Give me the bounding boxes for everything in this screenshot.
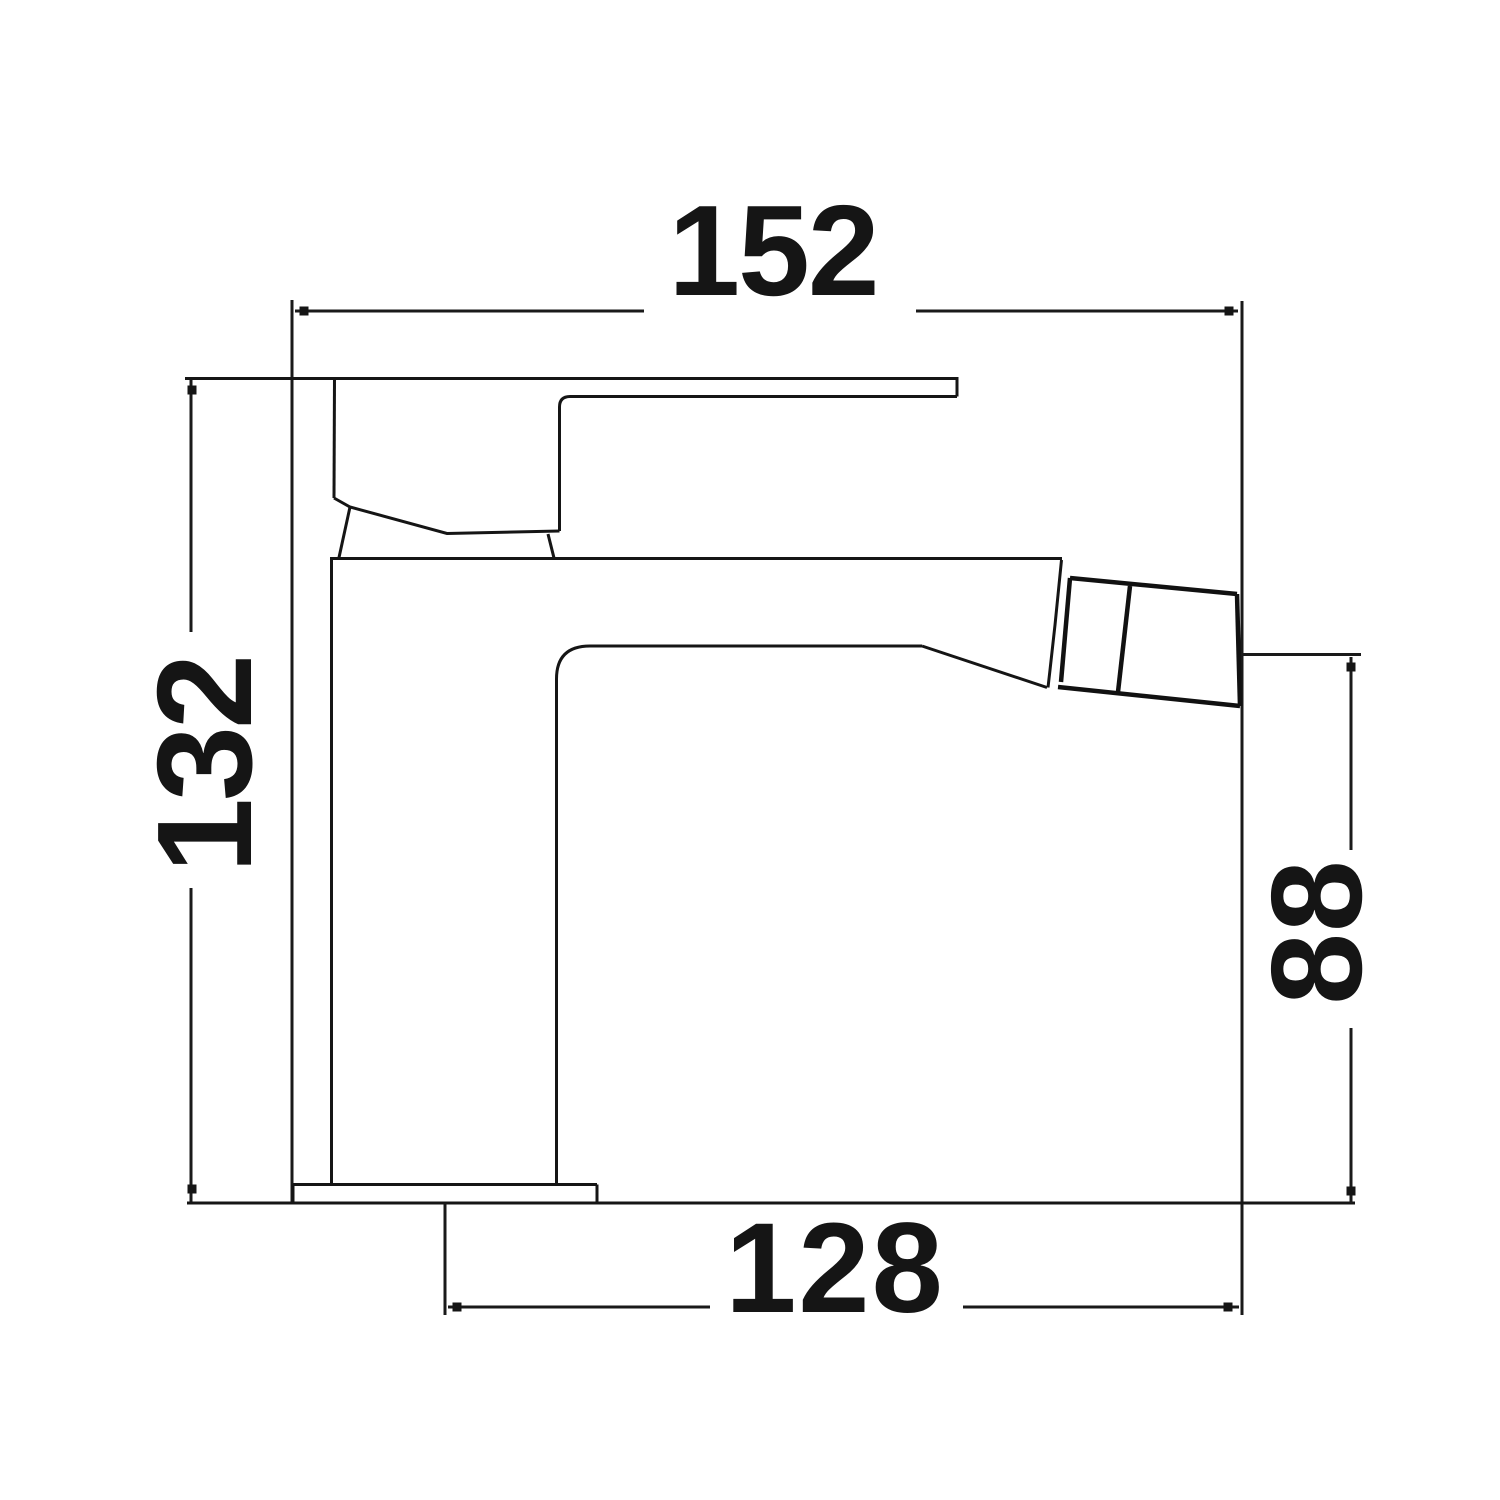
svg-text:132: 132 (129, 657, 280, 873)
svg-text:128: 128 (725, 1197, 945, 1340)
svg-text:88: 88 (1245, 859, 1389, 1005)
svg-text:152: 152 (668, 179, 877, 323)
